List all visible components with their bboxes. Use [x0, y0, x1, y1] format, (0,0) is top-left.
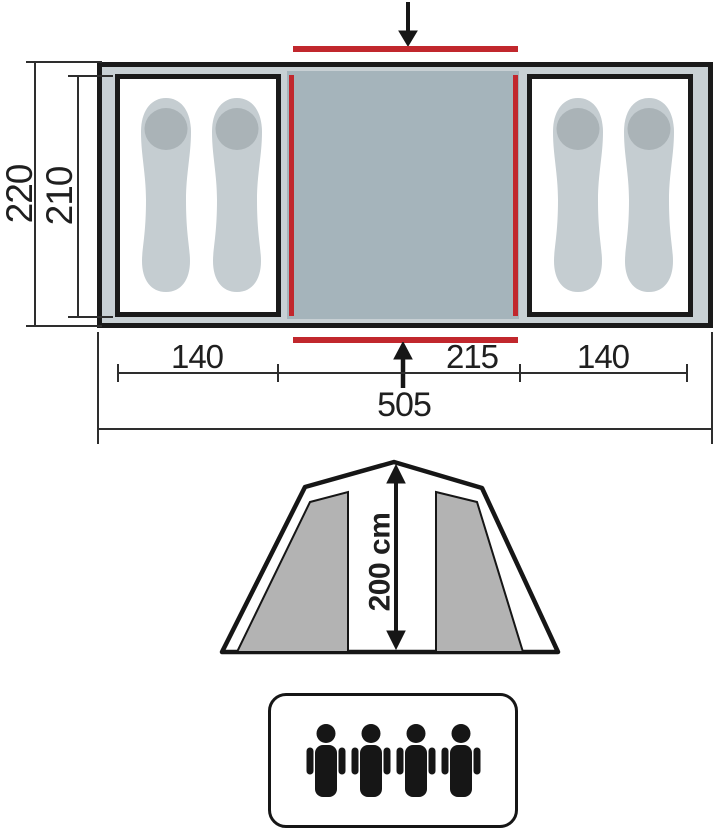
- dim-tick: [277, 364, 279, 382]
- entrance-arrow-up-icon: [391, 342, 415, 388]
- right-sleeping-cabin: [527, 74, 693, 317]
- dim-tick: [26, 325, 102, 327]
- tent-center-room: [287, 71, 519, 319]
- dim-label-left-width: 140: [147, 341, 247, 373]
- dim-tick: [686, 364, 688, 382]
- left-cabin-pads: [120, 79, 276, 312]
- left-sleeping-cabin: [115, 74, 281, 317]
- dim-tick: [117, 364, 119, 382]
- dim-label-right-width: 140: [553, 341, 653, 373]
- dim-tick: [26, 61, 102, 63]
- person-icon: [351, 724, 391, 798]
- sleeping-pad-icon: [141, 98, 191, 292]
- dim-tick: [68, 75, 113, 77]
- sleeping-pad-icon: [624, 98, 674, 292]
- sleeping-pad-icon: [553, 98, 603, 292]
- front-entrance-marking: [293, 46, 518, 52]
- dim-label-inner-height: 210: [40, 141, 80, 251]
- entrance-arrow-down-icon: [396, 2, 420, 46]
- left-divider-marking: [289, 75, 294, 316]
- capacity-badge: [268, 693, 518, 828]
- right-divider-marking: [513, 75, 518, 316]
- sleeping-pad-icon: [212, 98, 262, 292]
- person-icon: [396, 724, 436, 798]
- dim-label-peak-height: 200 cm: [364, 513, 397, 612]
- person-icon: [441, 724, 481, 798]
- person-icon: [306, 724, 346, 798]
- dim-label-center-width: 215: [422, 341, 522, 373]
- dim-tick: [68, 316, 113, 318]
- tent-dimensions-diagram: 220 210 140 215 140 505 200 cm: [0, 0, 714, 832]
- tent-front-elevation: 200 cm: [180, 450, 580, 665]
- dim-label-total-width: 505: [354, 389, 454, 421]
- dim-label-outer-height: 220: [0, 139, 40, 249]
- dim-line-total: [97, 428, 713, 430]
- right-cabin-pads: [532, 79, 688, 312]
